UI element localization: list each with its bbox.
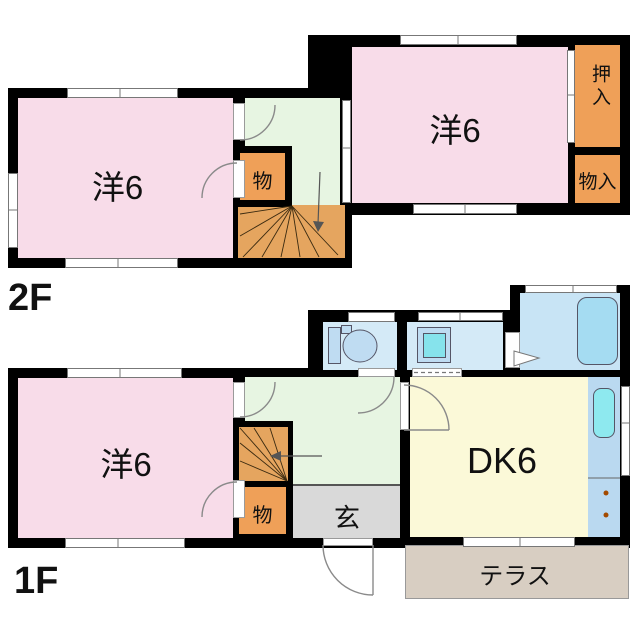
room-label-2f-west: 洋6 (75, 161, 160, 209)
window (65, 258, 178, 268)
sliding-window-terrace (463, 537, 575, 547)
window-toilet (348, 312, 395, 322)
sliding-door-2f-east (342, 100, 351, 203)
room-label-1f-storage: 物 (239, 499, 286, 528)
door-washroom-sliding (412, 368, 462, 377)
stairs-1f (239, 427, 288, 482)
door-toilet (358, 368, 395, 377)
window (8, 173, 18, 248)
kitchen-sink-icon (593, 388, 615, 438)
front-door-leaf (323, 538, 373, 546)
window (67, 88, 178, 98)
floor-label-1f: 1F (14, 560, 58, 603)
bathtub-icon (577, 297, 618, 365)
door-bathroom (505, 332, 520, 368)
door-dk-leaf (400, 382, 409, 430)
window-kitchen (621, 386, 630, 476)
door-1f-west-entry (233, 382, 245, 418)
toilet-button-icon (341, 325, 352, 334)
toilet-tank-icon (328, 327, 341, 364)
room-label-2f-east: 洋6 (412, 104, 498, 152)
washbasin-bowl-icon (423, 333, 446, 358)
window (67, 368, 182, 378)
door-2f-west-entry (233, 103, 245, 140)
window-washroom (418, 312, 503, 321)
sliding-door-oshiire (567, 50, 575, 143)
room-label-dk: DK6 (452, 440, 552, 482)
window-bath (525, 285, 617, 293)
stairs-2f (238, 205, 345, 258)
room-label-terrace: テラス (455, 556, 575, 591)
room-label-monoire: 物入 (575, 167, 620, 194)
window (400, 35, 517, 45)
floor-label-2f: 2F (8, 277, 52, 320)
window (65, 538, 185, 548)
floor-plan: 2F 洋6 洋6 押入 物入 物 1F 洋6 DK6 玄 物 テラス (0, 0, 640, 640)
window (413, 204, 517, 214)
room-label-1f-west: 洋6 (83, 438, 169, 486)
room-label-genkan: 玄 (334, 498, 360, 535)
room-label-oshiire: 押入 (586, 64, 613, 110)
room-label-2f-storage: 物 (240, 165, 285, 194)
